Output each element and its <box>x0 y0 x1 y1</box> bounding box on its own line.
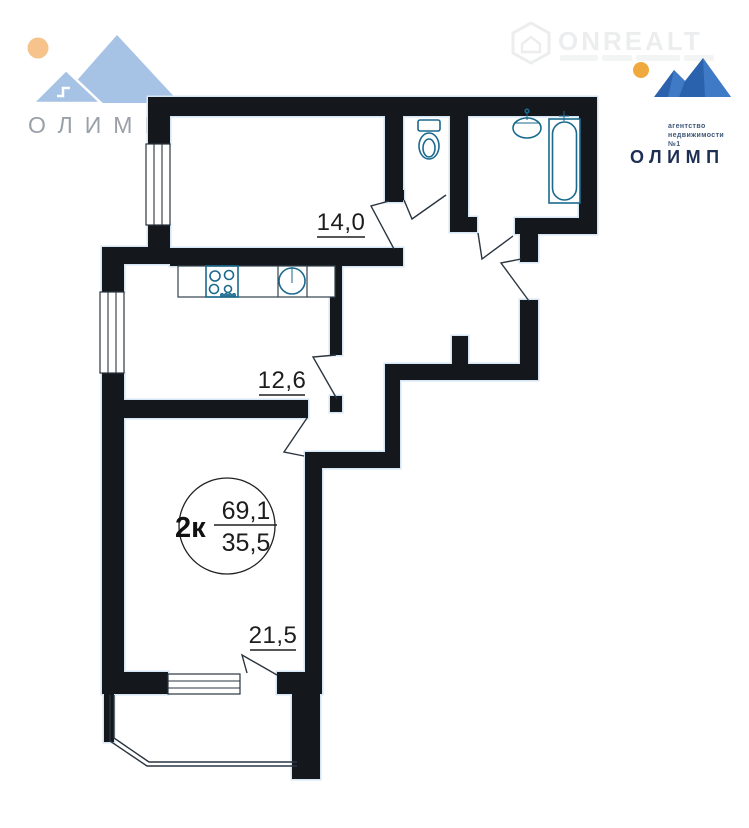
door-swing-bathroom <box>478 233 513 259</box>
window <box>100 292 124 373</box>
window <box>168 674 240 694</box>
mountains-icon <box>33 35 180 103</box>
stamp-total-area: 69,1 <box>222 497 271 525</box>
bathtub-icon <box>549 111 580 203</box>
door-swing-wc <box>404 195 446 219</box>
room-area-living-room: 21,5 <box>249 622 298 649</box>
brand-tagline-line3: №1 <box>668 140 681 148</box>
house-hexagon-icon <box>513 23 549 63</box>
balcony-glazing <box>110 695 297 766</box>
stamp-living-area: 35,5 <box>222 529 271 557</box>
kitchen-counter <box>178 266 335 297</box>
watermark-brand: ONREALT <box>558 26 703 56</box>
brand-name-right: ОЛИМП <box>630 147 725 167</box>
mountains-icon <box>654 58 731 97</box>
brand-tagline-line1: агентство <box>668 123 706 130</box>
sun-icon <box>28 38 49 59</box>
door-swing-bedroom <box>371 201 394 249</box>
watermark: ONREALT <box>513 23 714 63</box>
brand-tagline-line2: недвижимости <box>668 132 724 139</box>
brand-logo-right: ОЛИМП агентство недвижимости №1 <box>630 58 731 167</box>
sun-icon <box>633 62 649 78</box>
stamp-rooms-count: 2к <box>175 512 206 544</box>
room-area-bedroom: 14,0 <box>317 209 366 236</box>
window <box>146 144 170 225</box>
door-swing-balcony <box>242 655 277 675</box>
door-swing-living-room <box>284 418 307 456</box>
door-swing-kitchen <box>313 355 337 399</box>
floorplan-canvas: ONREALT ОЛИМП ОЛИМП агентство недвижимос… <box>0 0 749 828</box>
area-stamp: 2к 69,1 35,5 <box>175 478 277 574</box>
watermark-subtitle-illegible <box>560 55 714 61</box>
door-swing-entrance <box>501 259 529 301</box>
floorplan-page: ONREALT ОЛИМП ОЛИМП агентство недвижимос… <box>0 0 749 828</box>
room-area-kitchen: 12,6 <box>258 367 307 394</box>
toilet-icon <box>418 120 440 159</box>
